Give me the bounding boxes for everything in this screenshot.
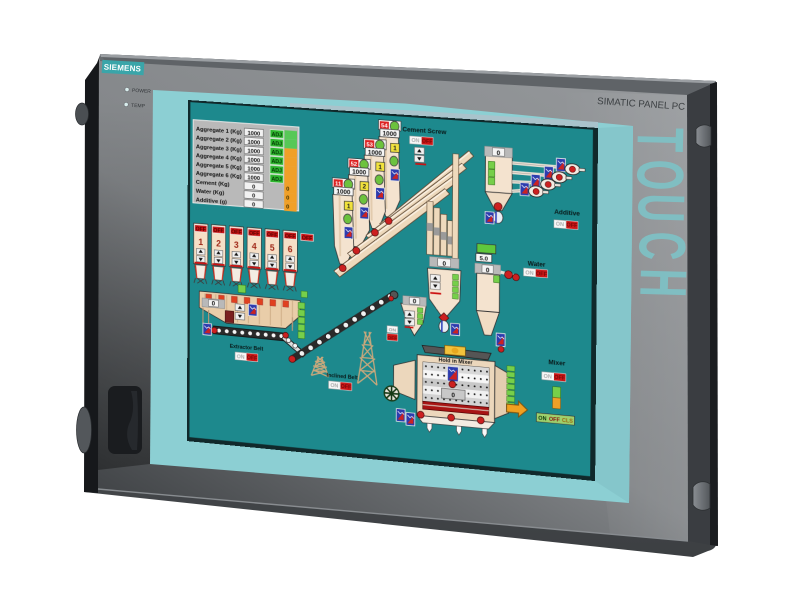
- svg-text:3: 3: [234, 239, 239, 250]
- svg-text:Mixer: Mixer: [548, 359, 566, 368]
- svg-text:ON: ON: [411, 138, 419, 145]
- svg-text:1000: 1000: [247, 175, 260, 182]
- svg-text:OFF: OFF: [422, 138, 433, 145]
- svg-text:OFF: OFF: [249, 231, 259, 238]
- svg-text:6: 6: [288, 244, 293, 255]
- svg-text:1000: 1000: [247, 139, 260, 146]
- svg-text:ON: ON: [538, 416, 547, 423]
- svg-text:1000: 1000: [247, 166, 260, 173]
- svg-text:1000: 1000: [352, 169, 367, 177]
- svg-text:OFF: OFF: [285, 233, 296, 240]
- svg-text:O: O: [623, 159, 698, 192]
- svg-text:OFF: OFF: [247, 355, 257, 362]
- svg-text:ON: ON: [544, 374, 553, 381]
- svg-text:ON: ON: [525, 270, 534, 277]
- svg-text:OFF: OFF: [341, 384, 352, 391]
- svg-text:1: 1: [378, 164, 382, 172]
- svg-text:ON: ON: [330, 383, 338, 390]
- svg-text:ADJ: ADJ: [271, 168, 282, 175]
- svg-text:C: C: [625, 231, 700, 262]
- svg-text:1: 1: [198, 237, 203, 248]
- svg-text:4: 4: [252, 241, 257, 252]
- svg-text:CLS: CLS: [562, 418, 574, 425]
- svg-text:0: 0: [486, 267, 490, 275]
- svg-text:H: H: [626, 268, 701, 299]
- svg-text:OFF: OFF: [213, 228, 223, 235]
- svg-text:0: 0: [252, 193, 255, 199]
- svg-text:ON: ON: [237, 354, 245, 361]
- svg-text:0: 0: [413, 298, 417, 306]
- svg-text:0: 0: [252, 184, 255, 190]
- svg-text:ADJ: ADJ: [272, 132, 283, 139]
- svg-text:U: U: [624, 193, 699, 224]
- svg-text:OFF: OFF: [566, 222, 577, 229]
- svg-text:1000: 1000: [336, 188, 351, 196]
- svg-text:OFF: OFF: [549, 417, 560, 424]
- svg-text:1000: 1000: [383, 130, 398, 138]
- svg-text:Water: Water: [528, 260, 546, 269]
- svg-text:OFF: OFF: [387, 335, 397, 342]
- svg-text:0: 0: [286, 196, 289, 202]
- svg-text:2: 2: [363, 183, 367, 191]
- svg-text:1000: 1000: [248, 130, 261, 137]
- svg-text:OFF: OFF: [536, 271, 547, 278]
- svg-text:0: 0: [451, 392, 455, 400]
- svg-text:OFF: OFF: [196, 226, 206, 233]
- svg-text:ADJ: ADJ: [271, 159, 282, 166]
- svg-text:0: 0: [212, 300, 216, 307]
- svg-text:1: 1: [393, 145, 397, 153]
- svg-text:0: 0: [252, 202, 255, 208]
- svg-text:1000: 1000: [368, 149, 383, 157]
- svg-text:OFF: OFF: [554, 375, 565, 382]
- svg-text:1000: 1000: [247, 148, 260, 155]
- svg-text:0: 0: [497, 150, 501, 158]
- svg-text:TEMP: TEMP: [131, 103, 146, 110]
- svg-text:5.0: 5.0: [480, 256, 488, 263]
- svg-text:ADJ: ADJ: [271, 150, 282, 157]
- svg-text:OFF: OFF: [302, 235, 313, 242]
- svg-text:ADJ: ADJ: [271, 177, 282, 184]
- svg-text:ADJ: ADJ: [272, 141, 283, 148]
- svg-text:OFF: OFF: [267, 232, 278, 239]
- svg-text:ON: ON: [556, 222, 565, 229]
- svg-text:POWER: POWER: [132, 88, 152, 95]
- svg-text:1000: 1000: [247, 157, 260, 164]
- svg-text:T: T: [623, 127, 698, 153]
- svg-text:OFF: OFF: [231, 229, 241, 236]
- svg-text:ON: ON: [389, 327, 397, 334]
- svg-text:0: 0: [286, 205, 289, 211]
- svg-text:0: 0: [286, 187, 289, 193]
- svg-text:5: 5: [270, 242, 275, 253]
- svg-text:1: 1: [347, 203, 351, 211]
- svg-text:2: 2: [216, 238, 221, 249]
- svg-text:0: 0: [442, 260, 446, 268]
